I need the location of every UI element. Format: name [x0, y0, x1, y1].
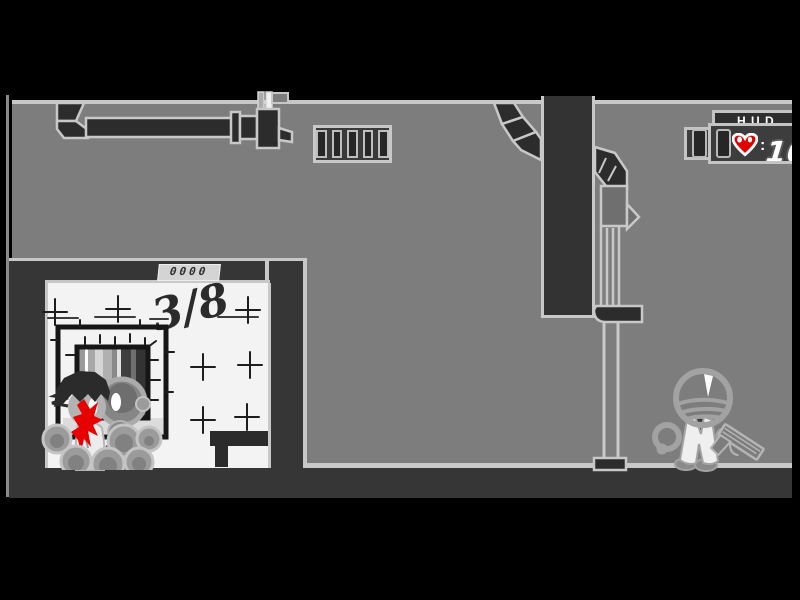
health-separator: :: [760, 137, 765, 155]
ammo-slot-icon: [716, 129, 731, 158]
helmet-candle: [704, 374, 713, 397]
tile-cross: [238, 352, 262, 378]
bench: [210, 431, 268, 467]
game-stage[interactable]: 0000: [0, 0, 800, 600]
tile-cross: [106, 296, 130, 322]
creature-eye: [111, 393, 121, 411]
tile-cross: [191, 354, 215, 380]
gunman-character[interactable]: [655, 371, 764, 474]
duct-elbow-left: [494, 103, 541, 160]
heart-icon: [732, 133, 758, 157]
air-duct-topleft: [57, 92, 292, 148]
tile-cross: [235, 404, 259, 430]
tile-cross: [236, 297, 260, 323]
wall-pipe: [594, 226, 642, 470]
health-panel: : 100: [708, 123, 800, 164]
wall-text: 3/8: [147, 274, 234, 342]
tile-cross: [191, 407, 215, 433]
ammo-slot-icon: [692, 129, 707, 158]
pipe-bracket: [594, 306, 642, 322]
letterbox-bottom: [0, 498, 800, 600]
letterbox-right: [792, 0, 800, 600]
duct-elbow-right: [595, 147, 639, 229]
tile-cross: [43, 299, 67, 325]
pipe-base: [594, 458, 626, 470]
